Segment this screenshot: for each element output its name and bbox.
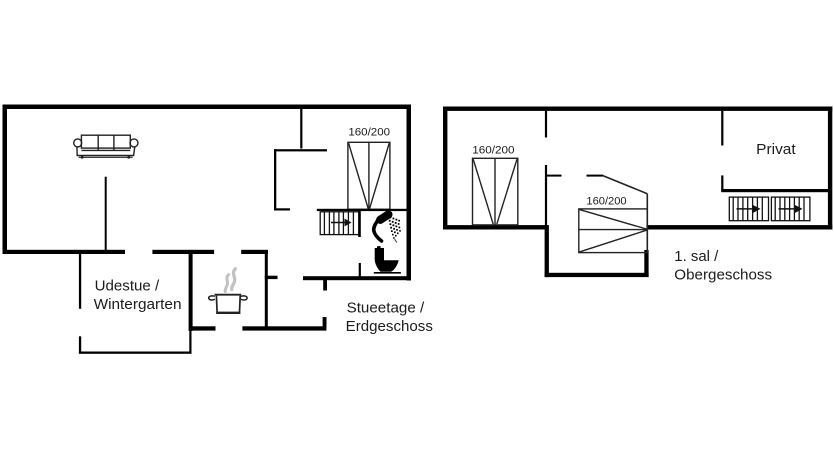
svg-text:160/200: 160/200 — [348, 126, 390, 138]
svg-text:160/200: 160/200 — [586, 195, 626, 207]
svg-text:Wintergarten: Wintergarten — [94, 297, 182, 313]
svg-text:Privat: Privat — [756, 142, 796, 158]
svg-text:160/200: 160/200 — [472, 145, 514, 157]
svg-text:1. sal /: 1. sal / — [674, 248, 719, 265]
svg-text:Stueetage /: Stueetage / — [347, 299, 425, 316]
svg-text:Udestue /: Udestue / — [95, 279, 161, 295]
svg-text:Erdgeschoss: Erdgeschoss — [346, 318, 433, 335]
svg-text:Obergeschoss: Obergeschoss — [674, 267, 772, 284]
